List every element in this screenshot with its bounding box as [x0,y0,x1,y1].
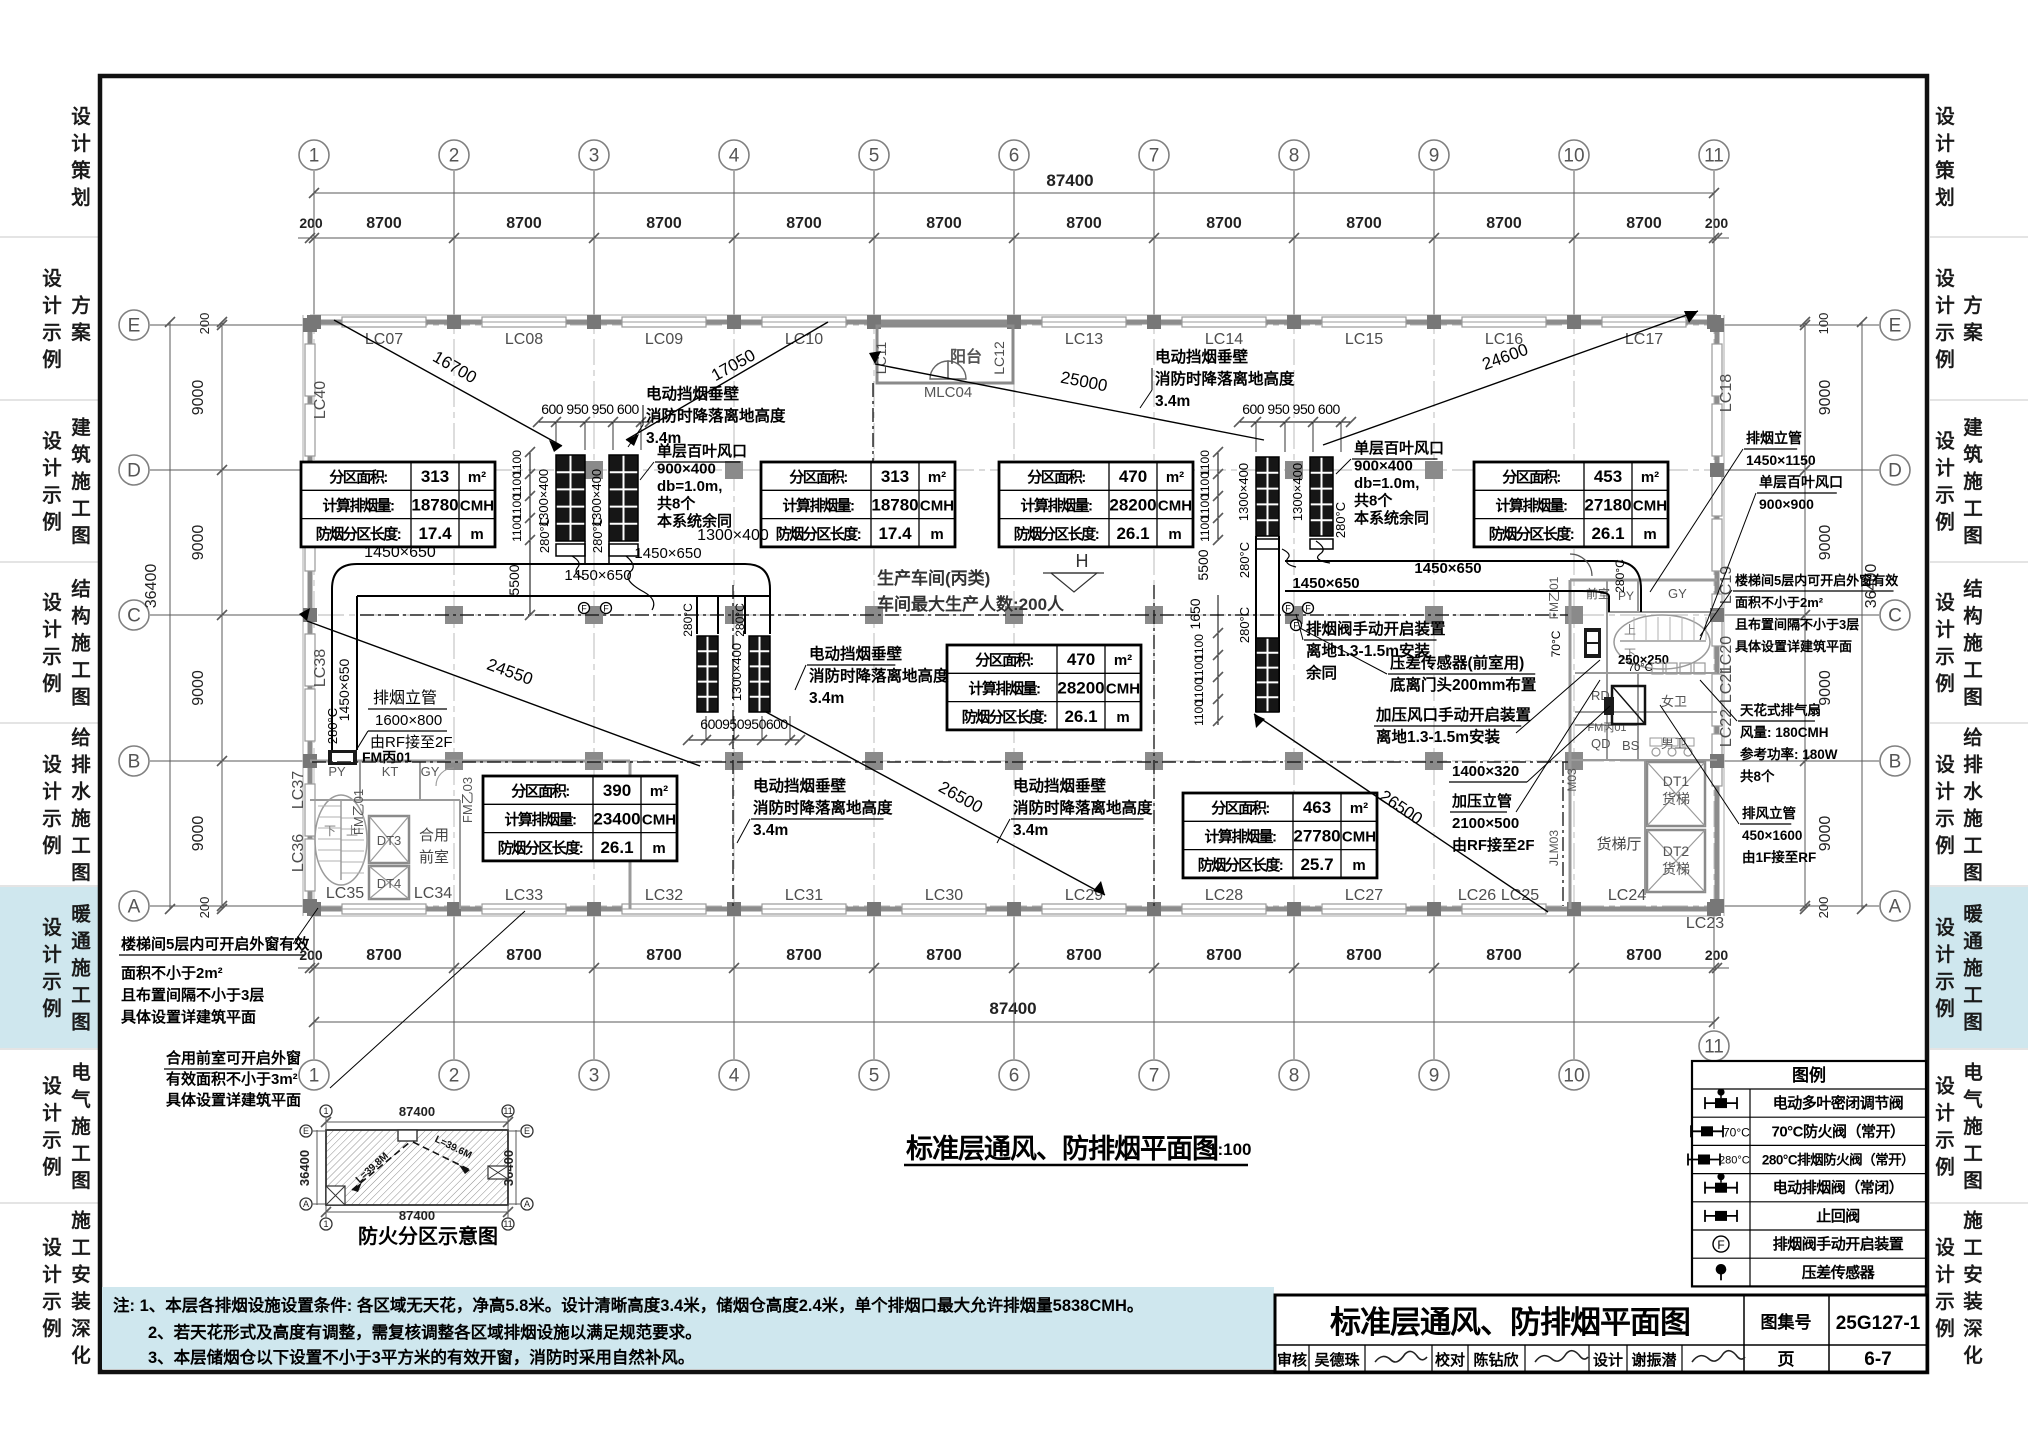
svg-text:10: 10 [1563,146,1584,167]
svg-text:B: B [1889,752,1902,773]
svg-text:工: 工 [1963,498,1983,520]
svg-text:m²: m² [650,783,668,800]
svg-text:3: 3 [589,146,600,167]
svg-text:m²: m² [468,469,486,486]
svg-text:计: 计 [1935,618,1955,641]
svg-text:17.4: 17.4 [878,524,912,543]
svg-text:11: 11 [503,1106,512,1116]
svg-text:8700: 8700 [926,215,962,232]
svg-text:设: 设 [1935,430,1955,452]
svg-text:17.4: 17.4 [418,524,452,543]
svg-text:加压风口手动开启装置: 加压风口手动开启装置 [1375,705,1531,724]
svg-text:A: A [128,897,141,918]
svg-text:化: 化 [71,1344,91,1367]
svg-text:设: 设 [42,430,62,452]
svg-text:CMH: CMH [642,811,676,828]
svg-text:余同: 余同 [1305,663,1337,682]
svg-text:防烟分区长度:: 防烟分区长度: [498,839,583,857]
svg-text:C: C [127,606,141,627]
svg-text:工: 工 [1963,984,1983,1006]
svg-text:8700: 8700 [1486,947,1522,964]
svg-text:8: 8 [1289,146,1300,167]
svg-text:E: E [128,316,141,337]
svg-text:电: 电 [1963,1061,1983,1084]
svg-text:具体设置详建筑平面: 具体设置详建筑平面 [1735,639,1852,654]
svg-text:280°C: 280°C [1237,607,1252,643]
svg-text:m²: m² [1114,652,1132,669]
svg-text:设: 设 [42,754,62,776]
svg-text:设: 设 [1935,592,1955,614]
svg-text:计: 计 [42,780,62,803]
svg-text:11: 11 [1704,146,1724,167]
svg-text:8700: 8700 [786,215,822,232]
svg-text:LC34: LC34 [414,885,452,902]
svg-text:工: 工 [71,1237,91,1259]
svg-text:排烟立管: 排烟立管 [373,689,437,707]
svg-text:FM乙01: FM乙01 [1547,576,1561,619]
svg-text:电动挡烟垂壁: 电动挡烟垂壁 [809,644,903,663]
svg-text:设计: 设计 [1593,1351,1623,1369]
svg-text:示: 示 [42,1291,62,1313]
svg-text:面积不小于2m²: 面积不小于2m² [121,964,223,982]
svg-text:5: 5 [869,1066,880,1087]
svg-text:db=1.0m,: db=1.0m, [1354,475,1419,492]
svg-text:阳台: 阳台 [950,347,982,366]
svg-text:合用: 合用 [419,827,449,844]
svg-text:工: 工 [1963,1143,1983,1165]
svg-text:工: 工 [1963,835,1983,857]
svg-text:例: 例 [1935,997,1955,1020]
svg-text:消防时降落离地高度: 消防时降落离地高度 [1013,798,1153,817]
svg-text:划: 划 [71,186,91,209]
svg-text:6: 6 [1009,1066,1020,1087]
svg-text:工: 工 [1963,659,1983,681]
svg-text:100: 100 [1816,313,1831,335]
svg-text:排: 排 [1963,753,1983,776]
svg-text:水: 水 [1963,780,1983,803]
svg-text:施: 施 [71,956,91,979]
svg-text:例: 例 [42,672,62,695]
svg-text:例: 例 [42,510,62,533]
svg-text:车间最大生产人数:200人: 车间最大生产人数:200人 [877,594,1065,614]
svg-text:1100: 1100 [1192,634,1206,660]
svg-text:图: 图 [1963,862,1983,884]
svg-text:设: 设 [42,592,62,614]
svg-text:示: 示 [1935,484,1955,506]
svg-text:1: 1 [309,1066,320,1087]
svg-text:计算排烟量:: 计算排烟量: [1205,827,1277,845]
svg-text:3.4m: 3.4m [1155,393,1190,410]
svg-text:装: 装 [1962,1290,1983,1313]
svg-text:计算排烟量:: 计算排烟量: [323,496,395,514]
svg-text:9000: 9000 [1817,816,1834,852]
svg-text:离地1.3-1.5m安装: 离地1.3-1.5m安装 [1376,727,1501,746]
svg-text:防烟分区长度:: 防烟分区长度: [1489,525,1574,543]
svg-text:2: 2 [449,1066,460,1087]
svg-text:天花式排气扇: 天花式排气扇 [1740,702,1821,718]
svg-text:图集号: 图集号 [1761,1312,1812,1332]
svg-text:工: 工 [71,835,91,857]
svg-text:计: 计 [1935,294,1955,317]
svg-text:4: 4 [729,146,740,167]
svg-text:1100: 1100 [510,494,524,520]
svg-text:m²: m² [1350,800,1368,817]
svg-text:87400: 87400 [399,1104,435,1119]
svg-text:8700: 8700 [506,215,542,232]
svg-text:280°C: 280°C [1333,502,1348,538]
svg-text:1100: 1100 [1198,472,1212,498]
svg-text:87400: 87400 [989,999,1036,1018]
svg-text:电动挡烟垂壁: 电动挡烟垂壁 [646,384,740,403]
svg-text:例: 例 [1935,510,1955,533]
svg-text:m²: m² [928,469,946,486]
svg-text:LC33: LC33 [505,887,543,904]
svg-text:例: 例 [42,1155,62,1178]
svg-text:设: 设 [42,268,62,290]
svg-text:LC22: LC22 [1718,709,1735,747]
svg-text:F: F [1285,604,1291,614]
svg-text:有效面积不小于3m²: 有效面积不小于3m² [166,1070,298,1088]
svg-text:26.1: 26.1 [1064,707,1097,726]
svg-text:BS: BS [1622,738,1640,753]
svg-text:施: 施 [1963,631,1983,654]
svg-text:图: 图 [71,686,91,708]
svg-text:施: 施 [71,631,91,654]
svg-text:600 950 950 600: 600 950 950 600 [541,401,639,417]
svg-text:GY: GY [1668,586,1687,601]
svg-text:计算排烟量:: 计算排烟量: [1496,496,1568,514]
svg-text:26.1: 26.1 [600,838,633,857]
svg-text:LC23: LC23 [1686,915,1724,932]
svg-text:设: 设 [1935,1075,1955,1097]
svg-text:谢振潜: 谢振潜 [1631,1351,1677,1369]
svg-text:KT: KT [382,764,399,779]
svg-text:示: 示 [42,646,62,668]
svg-text:QD: QD [1591,736,1611,751]
svg-text:设: 设 [1935,268,1955,290]
svg-text:8700: 8700 [506,947,542,964]
svg-text:CMH: CMH [1158,497,1192,514]
svg-text:建: 建 [1963,416,1983,439]
svg-text:货梯: 货梯 [1662,861,1690,877]
svg-text:图: 图 [71,525,91,547]
svg-text:A: A [524,1199,530,1209]
svg-text:分区面积:: 分区面积: [1502,468,1560,486]
svg-text:463: 463 [1303,798,1331,817]
svg-text:3.4m: 3.4m [809,690,844,707]
svg-text:11: 11 [503,1219,512,1229]
svg-text:C: C [1888,606,1902,627]
svg-text:8700: 8700 [1066,947,1102,964]
svg-text:示: 示 [1935,808,1955,830]
svg-text:200: 200 [299,215,323,231]
svg-text:36400: 36400 [297,1150,312,1186]
svg-text:2100×500: 2100×500 [1452,815,1519,832]
svg-text:1100: 1100 [1198,494,1212,520]
svg-text:策: 策 [71,159,91,182]
svg-text:计算排烟量:: 计算排烟量: [783,496,855,514]
svg-text:1450×650: 1450×650 [1292,575,1359,592]
svg-text:4: 4 [729,1066,740,1087]
svg-text:消防时降落离地高度: 消防时降落离地高度 [809,666,949,685]
svg-text:7: 7 [1149,146,1160,167]
svg-text:9000: 9000 [190,380,207,416]
svg-text:施: 施 [1963,956,1983,979]
svg-text:36400: 36400 [143,564,160,609]
svg-text:F: F [581,604,587,614]
svg-text:电动多叶密闭调节阀: 电动多叶密闭调节阀 [1773,1094,1904,1112]
svg-text:280°C: 280°C [590,517,605,553]
svg-text:450×1600: 450×1600 [1742,828,1802,843]
svg-text:计: 计 [42,943,62,966]
svg-text:工: 工 [71,1143,91,1165]
svg-text:1300×400: 1300×400 [729,643,744,701]
svg-text:F: F [603,604,609,614]
svg-text:案: 案 [1962,321,1983,344]
svg-text:页: 页 [1778,1350,1795,1369]
svg-text:LC08: LC08 [505,331,543,348]
svg-text:LC31: LC31 [785,887,823,904]
svg-text:9000: 9000 [190,816,207,852]
svg-text:标准层通风、防排烟平面图: 标准层通风、防排烟平面图 [1330,1305,1690,1340]
svg-text:LC13: LC13 [1065,331,1103,348]
svg-text:示: 示 [1935,1291,1955,1313]
svg-text:FM乙03: FM乙03 [460,777,475,823]
svg-text:1450×650: 1450×650 [336,658,352,721]
svg-text:m: m [1168,526,1181,543]
svg-text:底离门头200mm布置: 底离门头200mm布置 [1390,675,1536,694]
svg-text:设: 设 [42,1075,62,1097]
svg-text:构: 构 [71,604,91,627]
svg-text:600950950600: 600950950600 [700,716,788,732]
svg-text:例: 例 [42,1317,62,1340]
svg-text:通: 通 [1963,930,1983,952]
svg-text:暖: 暖 [1963,902,1983,925]
svg-text:FM乙01: FM乙01 [351,789,366,835]
svg-text:加压立管: 加压立管 [1451,792,1512,810]
svg-text:前室: 前室 [419,849,449,866]
svg-text:280°C: 280°C [537,517,552,553]
svg-text:3.4m: 3.4m [753,822,788,839]
svg-text:LC35: LC35 [326,885,364,902]
svg-text:案: 案 [70,321,91,344]
svg-text:分区面积:: 分区面积: [1027,468,1085,486]
svg-text:工: 工 [1963,1237,1983,1259]
svg-text:1450×650: 1450×650 [1414,560,1481,577]
svg-text:3: 3 [589,1066,600,1087]
svg-text:1600×800: 1600×800 [375,712,442,729]
svg-text:1100: 1100 [1192,656,1206,682]
svg-text:消防时降落离地高度: 消防时降落离地高度 [753,798,893,817]
svg-text:1300×400: 1300×400 [697,527,769,544]
svg-text:LC18: LC18 [1718,374,1735,412]
svg-text:280°C: 280°C [1237,542,1252,578]
svg-text:LC27: LC27 [1345,887,1383,904]
svg-text:70°C: 70°C [1549,630,1563,657]
svg-text:LC28: LC28 [1205,887,1243,904]
svg-text:通: 通 [71,930,91,952]
svg-text:分区面积:: 分区面积: [329,468,387,486]
svg-text:图: 图 [1963,525,1983,547]
svg-text:例: 例 [1935,348,1955,371]
svg-text:具体设置详建筑平面: 具体设置详建筑平面 [121,1008,256,1026]
svg-text:分区面积:: 分区面积: [511,782,569,800]
svg-text:筑: 筑 [1963,443,1983,466]
svg-text:图例: 图例 [1792,1065,1826,1085]
svg-text:共8个: 共8个 [1354,492,1393,510]
svg-text:3、本层储烟仓以下设置不小于3平方米的有效开窗，消防时采用自: 3、本层储烟仓以下设置不小于3平方米的有效开窗，消防时采用自然补风。 [148,1347,694,1367]
svg-text:货梯: 货梯 [1662,791,1690,807]
svg-text:10: 10 [1563,1066,1584,1087]
svg-text:陈钻欣: 陈钻欣 [1473,1351,1519,1369]
svg-text:例: 例 [1935,1155,1955,1178]
svg-text:参考功率: 180W: 参考功率: 180W [1740,746,1838,762]
svg-text:计: 计 [42,1101,62,1124]
svg-text:示: 示 [1935,322,1955,344]
svg-text:示: 示 [42,1129,62,1151]
svg-text:设: 设 [1935,917,1955,939]
svg-text:分区面积:: 分区面积: [1211,799,1269,817]
svg-text:m: m [930,526,943,543]
svg-text:示: 示 [1935,646,1955,668]
svg-text:单层百叶风口: 单层百叶风口 [1354,439,1444,457]
svg-text:28200: 28200 [1057,678,1104,697]
svg-text:止回阀: 止回阀 [1816,1207,1860,1225]
svg-text:900×400: 900×400 [1354,458,1413,475]
svg-text:深: 深 [1963,1317,1983,1340]
svg-text:LC24: LC24 [1608,887,1646,904]
svg-text:安: 安 [71,1263,91,1286]
svg-text:示: 示 [42,484,62,506]
svg-text:900×400: 900×400 [657,461,716,478]
svg-text:上: 上 [1624,623,1636,637]
svg-text:气: 气 [70,1088,91,1111]
svg-text:防烟分区长度:: 防烟分区长度: [316,525,401,543]
svg-text:压差传感器: 压差传感器 [1802,1263,1876,1281]
svg-text:图: 图 [71,1011,91,1033]
svg-text:女卫: 女卫 [1661,694,1687,709]
svg-text:5500: 5500 [506,564,522,595]
svg-text:LC30: LC30 [925,887,963,904]
svg-text:1450×650: 1450×650 [564,567,631,584]
svg-text:3.4m: 3.4m [1013,822,1048,839]
svg-text:8700: 8700 [1066,215,1102,232]
svg-text:m: m [1352,857,1365,874]
svg-text:280°C: 280°C [1719,1155,1750,1167]
svg-text:200: 200 [1705,215,1729,231]
svg-text:设: 设 [42,917,62,939]
svg-text:设: 设 [42,1237,62,1259]
svg-text:化: 化 [1963,1344,1983,1367]
svg-text:27180: 27180 [1584,495,1631,514]
svg-text:计: 计 [42,1263,62,1286]
svg-text:8700: 8700 [646,215,682,232]
svg-text:2、若天花形式及高度有调整，需复核调整各区域排烟设施以满足规: 2、若天花形式及高度有调整，需复核调整各区域排烟设施以满足规范要求。 [148,1322,702,1342]
svg-text:排风立管: 排风立管 [1742,805,1796,821]
svg-text:70°C防火阀（常开）: 70°C防火阀（常开） [1771,1122,1904,1140]
svg-text:例: 例 [42,997,62,1020]
svg-text:LC40: LC40 [312,381,329,419]
svg-text:工: 工 [71,659,91,681]
svg-text:施: 施 [1963,1115,1983,1138]
svg-text:货梯厅: 货梯厅 [1596,836,1641,853]
svg-text:LC17: LC17 [1625,331,1663,348]
svg-text:9000: 9000 [190,670,207,706]
svg-text:施: 施 [1963,470,1983,493]
svg-text:m: m [470,526,483,543]
svg-text:1100: 1100 [510,472,524,498]
svg-text:A: A [1889,897,1902,918]
svg-text:8700: 8700 [1626,215,1662,232]
svg-text:防烟分区长度:: 防烟分区长度: [962,708,1047,726]
svg-text:计算排烟量:: 计算排烟量: [969,679,1041,697]
svg-text:LC12: LC12 [991,341,1007,375]
svg-text:共8个: 共8个 [1740,768,1775,784]
svg-text:电动挡烟垂壁: 电动挡烟垂壁 [1013,776,1107,795]
svg-text:且布置间隔不小于3层: 且布置间隔不小于3层 [1735,617,1859,632]
svg-text:具体设置详建筑平面: 具体设置详建筑平面 [166,1091,301,1109]
svg-text:D: D [127,461,141,482]
svg-text:LC15: LC15 [1345,331,1383,348]
svg-text:计: 计 [42,618,62,641]
svg-text:结: 结 [1963,577,1983,600]
svg-text:m: m [652,840,665,857]
svg-text:示: 示 [1935,971,1955,993]
svg-text:结: 结 [71,577,91,600]
svg-text:LC26: LC26 [1458,887,1496,904]
svg-text:87400: 87400 [399,1208,435,1223]
svg-text:计算排烟量:: 计算排烟量: [1021,496,1093,514]
svg-text:470: 470 [1119,467,1147,486]
svg-text:电动挡烟垂壁: 电动挡烟垂壁 [1155,347,1249,366]
svg-text:m: m [1643,526,1656,543]
svg-text:M03: M03 [1565,768,1579,792]
svg-text:8700: 8700 [926,947,962,964]
svg-text:LC32: LC32 [645,887,683,904]
svg-text:E: E [303,1126,309,1136]
svg-text:防烟分区长度:: 防烟分区长度: [1198,856,1283,874]
svg-text:A: A [303,1199,309,1209]
svg-text:示: 示 [42,322,62,344]
svg-text:计: 计 [1935,132,1955,155]
svg-text:8700: 8700 [1346,215,1382,232]
svg-text:23400: 23400 [593,809,640,828]
svg-text:电动排烟阀（常闭）: 电动排烟阀（常闭） [1773,1179,1904,1197]
svg-text:70°C: 70°C [1723,1125,1750,1139]
svg-text:注: 1、本层各排烟设施设置条件: 各区域无天花，净高5.8: 注: 1、本层各排烟设施设置条件: 各区域无天花，净高5.8米。设计清晰高度3.… [113,1295,1143,1315]
svg-text:风量: 180CMH: 风量: 180CMH [1740,725,1829,740]
svg-text:200: 200 [197,897,212,919]
svg-text:LC36: LC36 [290,834,307,872]
svg-text:25.7: 25.7 [1300,855,1333,874]
svg-text:1100: 1100 [1198,516,1212,542]
svg-text:暖: 暖 [71,902,91,925]
svg-text:DT4: DT4 [377,876,402,891]
svg-text:计: 计 [1935,1263,1955,1286]
svg-text:1100: 1100 [510,516,524,542]
svg-text:5500: 5500 [1195,549,1211,580]
svg-text:施: 施 [71,470,91,493]
svg-text:计: 计 [1935,780,1955,803]
svg-text:给: 给 [71,726,91,749]
svg-text:计: 计 [1935,456,1955,479]
svg-text:工: 工 [71,984,91,1006]
svg-text:楼梯间5层内可开启外窗有效: 楼梯间5层内可开启外窗有效 [121,935,310,953]
svg-text:设: 设 [1935,1237,1955,1259]
svg-text:CMH: CMH [1106,680,1140,697]
svg-text:图: 图 [1963,1011,1983,1033]
svg-text:1100: 1100 [510,450,524,476]
